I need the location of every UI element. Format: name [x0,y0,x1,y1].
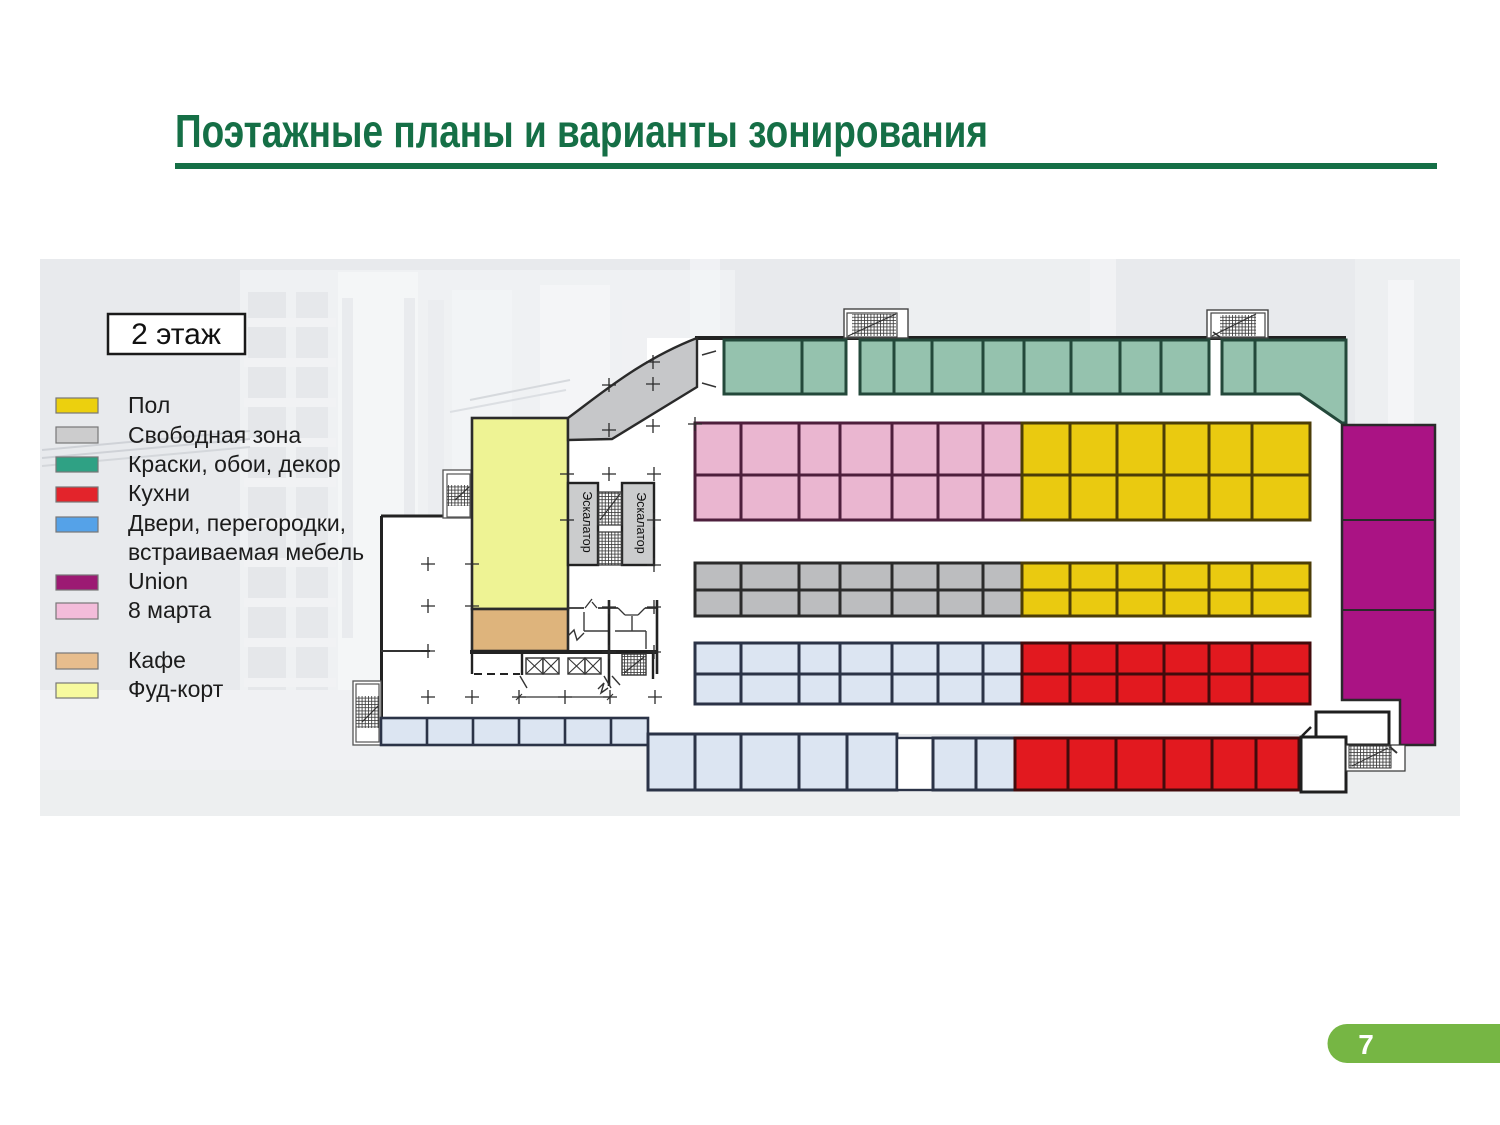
svg-text:встраиваемая мебель: встраиваемая мебель [128,539,364,565]
svg-text:7: 7 [1358,1029,1374,1060]
svg-text:Двери, перегородки,: Двери, перегородки, [128,510,346,536]
svg-text:Кухни: Кухни [128,480,190,506]
svg-text:Краски, обои, декор: Краски, обои, декор [128,451,341,477]
svg-text:Фуд-корт: Фуд-корт [128,676,224,702]
svg-text:Свободная зона: Свободная зона [128,422,301,448]
svg-text:Эскалатор: Эскалатор [580,491,594,552]
svg-text:8 марта: 8 марта [128,597,211,623]
svg-text:Поэтажные планы и варианты зон: Поэтажные планы и варианты зонирования [175,105,988,157]
svg-text:2 этаж: 2 этаж [131,318,221,351]
svg-text:Union: Union [128,568,188,594]
svg-text:Кафе: Кафе [128,647,186,673]
svg-text:Эскалатор: Эскалатор [634,492,648,553]
svg-text:Пол: Пол [128,392,170,418]
